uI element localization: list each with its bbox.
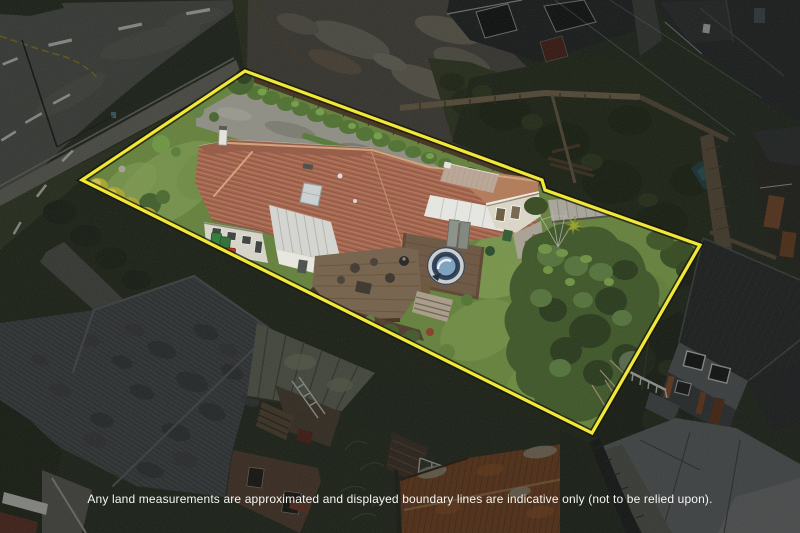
svg-text:Any land measurements are appr: Any land measurements are approximated a… (87, 492, 712, 506)
